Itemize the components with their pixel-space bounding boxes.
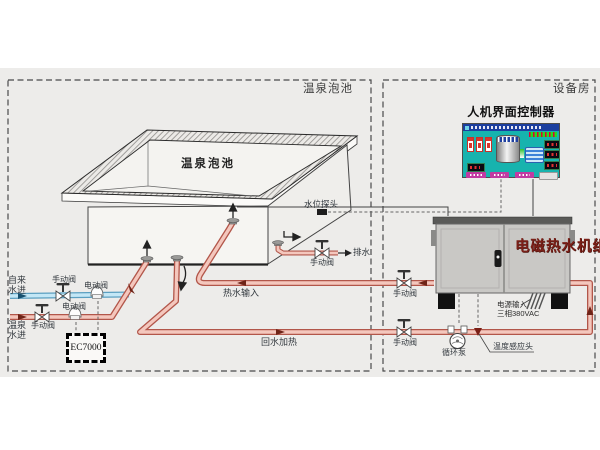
tap-water-label: 自来水进 [8, 275, 28, 295]
hot-supply-label: 热水输入 [223, 288, 259, 298]
hmi-logo-icon [465, 126, 469, 130]
drain-valve-label: 手动阀 [310, 259, 334, 268]
tap-manual-valve-label: 手动阀 [52, 276, 76, 285]
machine-side-tab [431, 230, 436, 246]
hmi-heater-icon [467, 137, 474, 152]
hmi-pump-icon [520, 149, 524, 158]
hot-supply-valve-label: 手动阀 [393, 290, 417, 299]
return-label: 回水加热 [261, 337, 297, 347]
schematic-drawing [0, 0, 600, 450]
tap-electric-valve-label: 电动阀 [84, 282, 108, 291]
hmi-button[interactable] [490, 172, 509, 178]
spring-water-label: 温泉水进 [8, 320, 28, 340]
return-valve-label: 手动阀 [393, 339, 417, 348]
hmi-digital-display [544, 140, 560, 149]
heater-unit [431, 217, 575, 309]
pool-room-label: 温泉泡池 [303, 83, 353, 96]
hmi-status-banner [529, 132, 557, 137]
hmi-screen [462, 123, 560, 178]
equipment-room-label: 设备房 [553, 83, 591, 96]
drain-label: 排水 [353, 248, 370, 258]
temp-sensor-label: 温度感应头 [493, 343, 533, 352]
drain-arrow-icon [345, 250, 352, 257]
hmi-digital-display [544, 161, 560, 170]
hmi-titlebar [463, 124, 559, 131]
machine-name-label: 电磁热水机组 [515, 239, 564, 255]
diagram-canvas: 温泉泡池 设备房 温泉泡池 水位探头 排水 手动阀 自来水进 手动阀 电动阀 电… [0, 0, 600, 450]
hmi-heater-icon [485, 137, 492, 152]
pool-name-label: 温泉泡池 [181, 158, 235, 171]
machine-top [433, 217, 572, 224]
pump-label: 循环泵 [442, 349, 466, 358]
spring-manual-valve-label: 手动阀 [31, 322, 55, 331]
machine-foot [551, 293, 568, 309]
door-lock [497, 256, 500, 259]
ec7000-label: EC7000 [70, 343, 101, 353]
ec7000-controller: EC7000 [66, 333, 106, 363]
water-level-probe-label: 水位探头 [304, 200, 338, 210]
machine-body [436, 224, 570, 293]
hmi-heater-icon [476, 137, 483, 152]
hmi-digital-display [544, 150, 560, 159]
hmi-tank-icon [496, 135, 520, 163]
hmi-digital-display [467, 163, 485, 172]
machine-foot [438, 293, 455, 309]
pool [62, 130, 357, 265]
hmi-titlebar-text [471, 126, 541, 129]
hmi-button[interactable] [466, 172, 486, 178]
hmi-pool-icon [525, 147, 544, 163]
water-level-probe-icon [317, 209, 327, 215]
hmi-button[interactable] [539, 172, 558, 180]
spring-electric-valve-label: 电动阀 [62, 303, 86, 312]
hmi-button[interactable] [515, 172, 534, 178]
power-input-label: 电源输入 三相380VAC [497, 300, 539, 318]
power-input-line2: 三相380VAC [497, 309, 539, 318]
hmi-title-label: 人机界面控制器 [461, 106, 561, 119]
power-input-line1: 电源输入 [497, 300, 539, 309]
